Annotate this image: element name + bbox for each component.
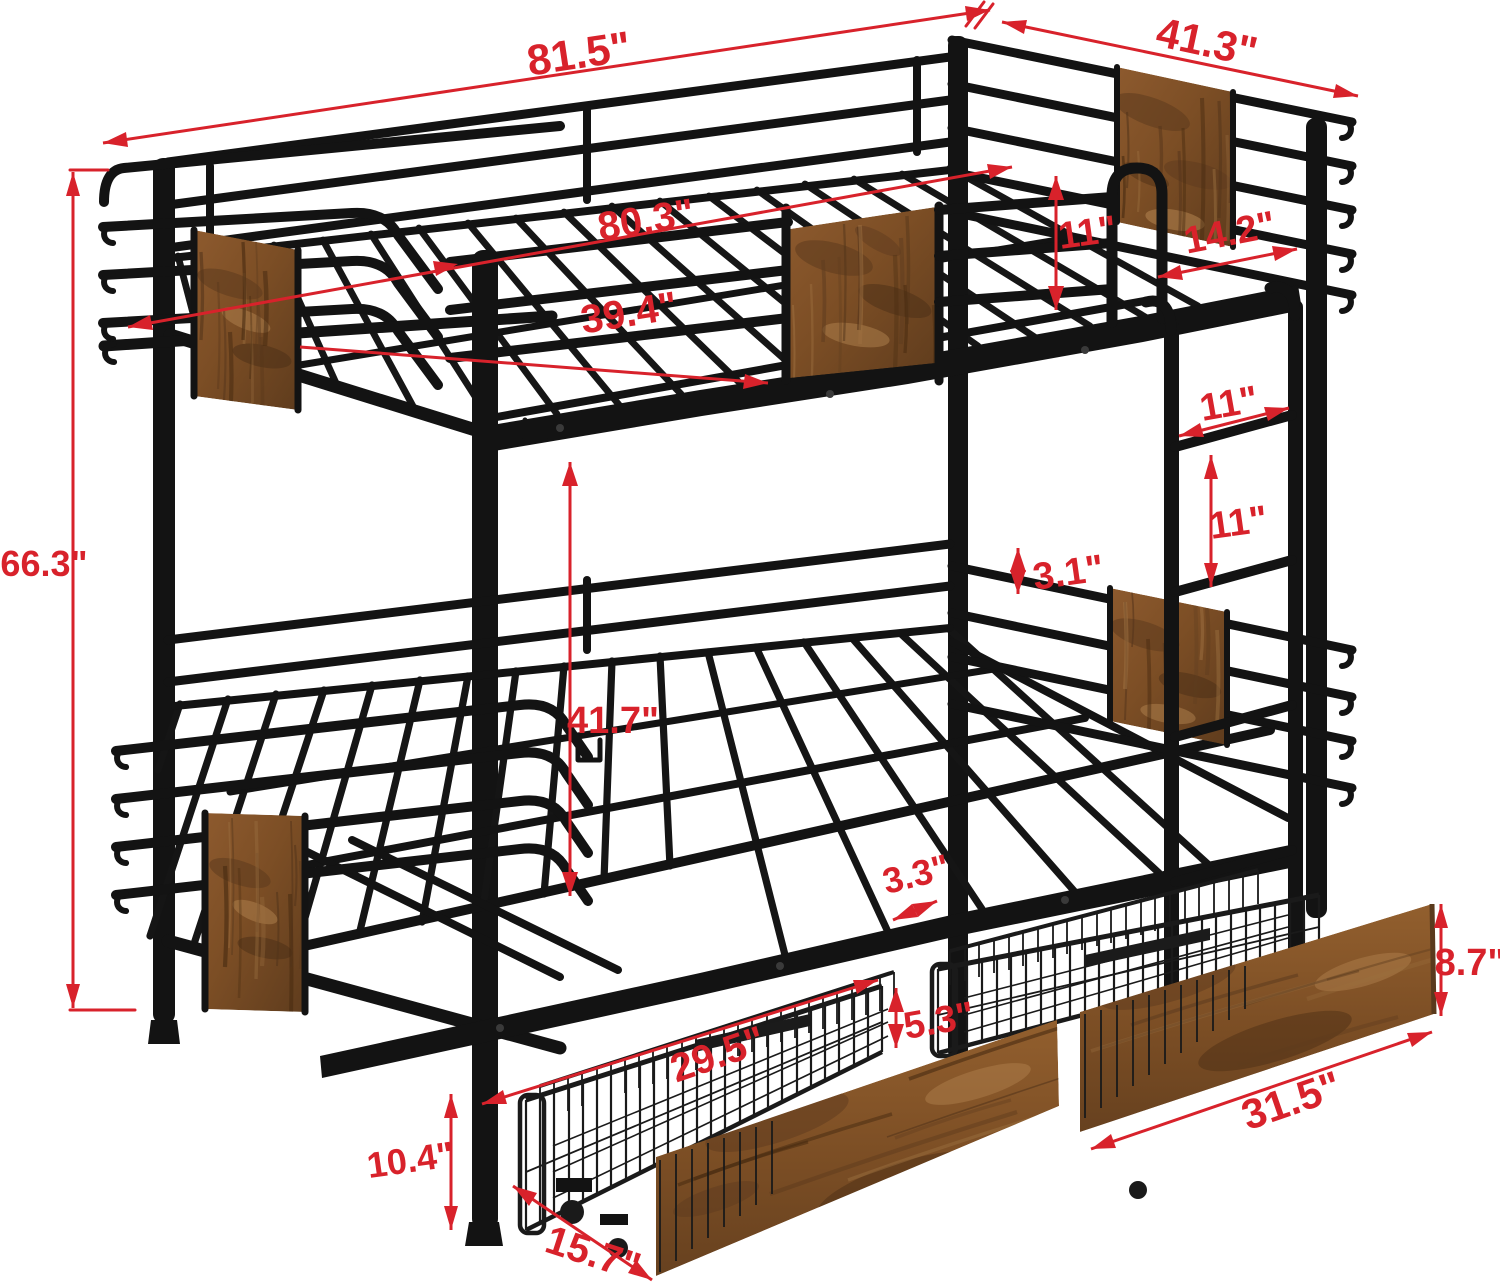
svg-text:41.7": 41.7"	[567, 700, 659, 742]
svg-text:11": 11"	[1056, 208, 1119, 258]
svg-text:8.7": 8.7"	[1435, 942, 1500, 984]
svg-text:66.3": 66.3"	[0, 543, 87, 584]
svg-text:11": 11"	[1207, 498, 1270, 548]
